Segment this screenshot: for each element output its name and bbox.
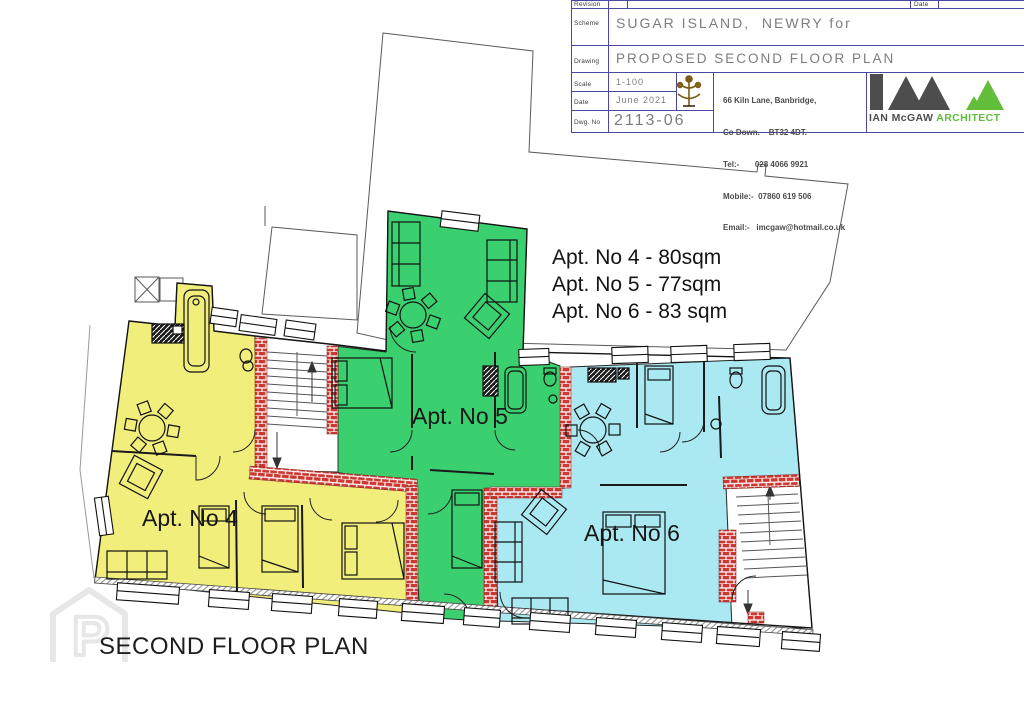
- apt-6-area-note: Apt. No 6 - 83 sqm: [552, 298, 727, 325]
- architect-logo-text: IAN McGAW ARCHITECT: [869, 112, 1000, 124]
- site-boundary-line: [80, 325, 94, 578]
- dwg-no-label: Dwg. No: [574, 119, 600, 126]
- central-staircase: [255, 336, 338, 472]
- contact-tel: Tel:- 028 4066 9921: [723, 160, 845, 171]
- contact-address-1: 66 Kiln Lane, Banbridge,: [723, 96, 845, 107]
- hotpress-symbol: [483, 366, 498, 396]
- scheme-value: SUGAR ISLAND, NEWRY for: [616, 15, 852, 31]
- revision-date-label: Date: [914, 1, 929, 8]
- apt-5-label: Apt. No 5: [412, 403, 508, 430]
- drawing-value: PROPOSED SECOND FLOOR PLAN: [616, 51, 895, 66]
- side-annex-outline: [262, 227, 357, 320]
- kitchen-unit-symbol: [588, 368, 616, 382]
- scale-label: Scale: [574, 81, 591, 88]
- logo-name: IAN McGAW: [869, 112, 933, 124]
- scheme-label: Scheme: [574, 20, 599, 27]
- right-staircase: [726, 480, 812, 628]
- area-annotations: Apt. No 4 - 80sqm Apt. No 5 - 77sqm Apt.…: [552, 244, 727, 325]
- ima-logo-icon: [870, 74, 1004, 110]
- logo-title: ARCHITECT: [936, 112, 1000, 124]
- floor-plan-page: P Apt. No 4 Apt. No 5 Apt. No 6 Apt. No …: [0, 0, 1024, 707]
- floor-plan-drawing: P: [0, 0, 1024, 707]
- contact-email: Email:- imcgaw@hotmail.co.uk: [723, 223, 845, 234]
- apt-6-label: Apt. No 6: [584, 520, 680, 547]
- architect-crest-icon: [678, 76, 701, 106]
- dwg-no-value: 2113-06: [614, 112, 686, 130]
- architect-contact: 66 Kiln Lane, Banbridge, Co Down. BT32 4…: [723, 75, 845, 255]
- revision-label: Revision: [574, 1, 601, 8]
- contact-mobile: Mobile:- 07860 619 506: [723, 192, 845, 203]
- apt-5-area-note: Apt. No 5 - 77sqm: [552, 271, 727, 298]
- plan-title: SECOND FLOOR PLAN: [99, 633, 369, 661]
- apt-4-area-note: Apt. No 4 - 80sqm: [552, 244, 727, 271]
- scale-value: 1-100: [616, 77, 644, 87]
- apt-4-label: Apt. No 4: [142, 505, 238, 532]
- date-label: Date: [574, 99, 589, 106]
- drawing-label: Drawing: [574, 58, 599, 65]
- date-value: June 2021: [616, 95, 667, 105]
- contact-address-2: Co Down. BT32 4DT.: [723, 128, 845, 139]
